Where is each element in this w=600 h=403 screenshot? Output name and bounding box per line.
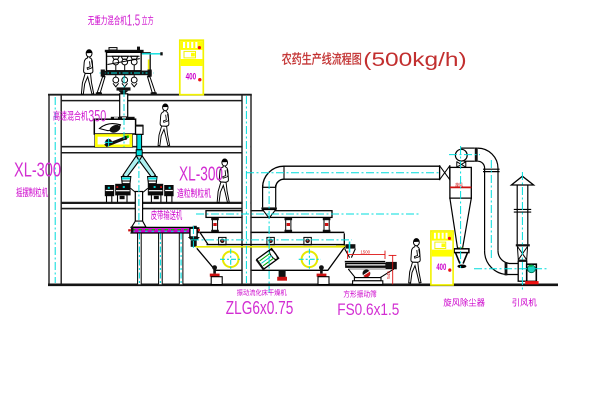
svg-text:XL-300: XL-300 (14, 158, 61, 181)
svg-text:1.5: 1.5 (127, 13, 141, 30)
svg-text:ZLG6x0.75: ZLG6x0.75 (226, 298, 293, 318)
svg-text:(500kg/h): (500kg/h) (363, 50, 466, 71)
svg-text:350: 350 (88, 107, 106, 126)
svg-text:FS0.6x1.5: FS0.6x1.5 (337, 301, 399, 319)
svg-text:XL-300: XL-300 (179, 164, 223, 186)
svg-text:545: 545 (386, 271, 392, 279)
svg-text:1500: 1500 (361, 250, 371, 256)
